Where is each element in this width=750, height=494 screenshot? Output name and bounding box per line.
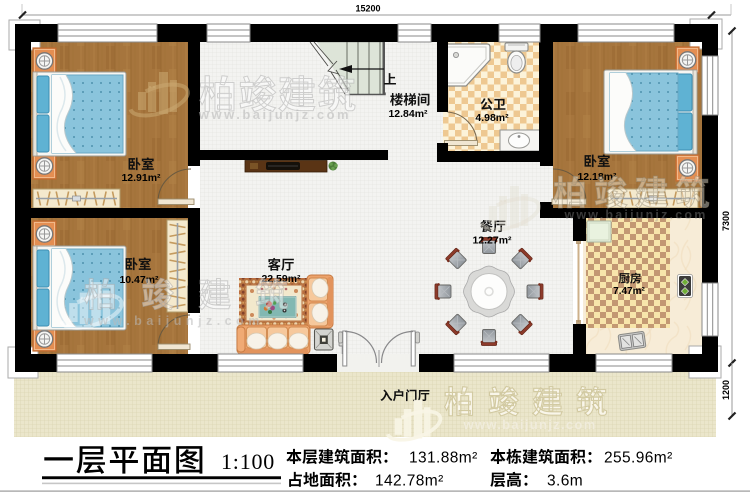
svg-text:1200: 1200 (721, 380, 731, 400)
svg-text:www.baijunjz.com: www.baijunjz.com (198, 107, 351, 122)
svg-text:12.27m²: 12.27m² (472, 235, 512, 247)
svg-text:7.47m²: 7.47m² (613, 286, 645, 297)
svg-text:12.84m²: 12.84m² (388, 108, 428, 120)
svg-text:www.baijunjz.com: www.baijunjz.com (463, 417, 597, 432)
svg-text:www.baijunjz.com: www.baijunjz.com (563, 208, 707, 222)
svg-text:15200: 15200 (355, 4, 380, 14)
svg-text:12.91m²: 12.91m² (121, 172, 161, 184)
svg-text:255.96m²: 255.96m² (604, 450, 673, 467)
svg-text:131.88m²: 131.88m² (409, 450, 478, 467)
svg-text:4.98m²: 4.98m² (475, 112, 509, 124)
svg-text:7300: 7300 (721, 211, 731, 231)
svg-text:www.baijunjz.com: www.baijunjz.com (83, 314, 264, 328)
svg-text:1:100: 1:100 (221, 449, 275, 474)
svg-text:3.6m: 3.6m (547, 473, 583, 490)
svg-text:142.78m²: 142.78m² (375, 473, 444, 490)
